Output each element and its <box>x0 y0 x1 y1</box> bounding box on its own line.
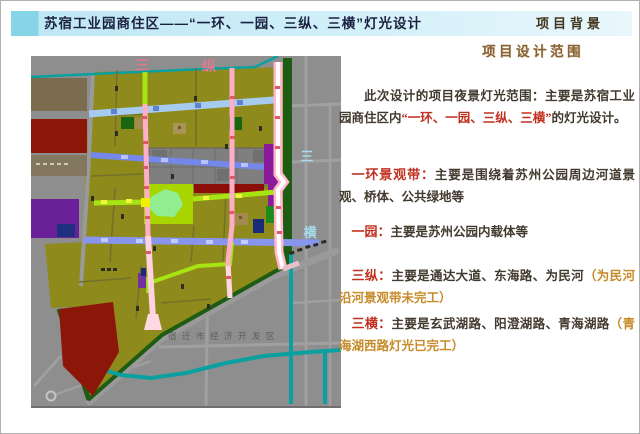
scope-item-horizontal-label: 三横： <box>352 316 392 331</box>
scope-item-vertical-body: 主要是通达大道、东海路、为民河 <box>392 269 584 283</box>
scope-item-ring: 一环景观带：主要是围绕着苏州公园周边河道景观、桥体、公共绿地等 <box>339 164 635 208</box>
parcel-red-west <box>31 119 87 153</box>
parcel-tan-3-dot <box>239 216 242 219</box>
presentation-slide: 苏宿工业园商住区——“一环、一园、三纵、三横”灯光设计 项目背景 项目设计范围 <box>0 0 640 434</box>
slide-title: 苏宿工业园商住区——“一环、一园、三纵、三横”灯光设计 <box>44 11 422 36</box>
landuse-map-svg: 三 纵 三 横 宿迁市经济开发区 <box>31 56 341 406</box>
scope-item-park-body: 主要是苏州公园内载体等 <box>391 225 529 239</box>
scope-item-vertical: 三纵：主要是通达大道、东海路、为民河（为民河沿河景观带未完工） <box>339 265 635 309</box>
scope-item-horizontal: 三横：主要是玄武湖路、阳澄湖路、青海湖路（青海湖西路灯光已完工） <box>339 313 635 357</box>
map-label-three-horizontal-2: 横 <box>303 225 317 240</box>
scope-item-park: 一园：主要是苏州公园内载体等 <box>339 221 635 243</box>
district-label: 宿迁市经济开发区 <box>168 331 280 341</box>
parcel-navy-east <box>253 219 264 233</box>
scope-item-horizontal-body: 主要是玄武湖路、阳澄湖路、青海湖路 <box>392 317 610 331</box>
parcel-navy-west <box>57 224 75 237</box>
parcel-tan-2-dot <box>178 126 181 129</box>
scope-item-park-label: 一园： <box>352 224 391 239</box>
scope-item-vertical-label: 三纵： <box>352 268 392 283</box>
map-label-three-horizontal-1: 三 <box>300 149 313 164</box>
road-horizontal-3 <box>84 240 319 243</box>
scope-item-ring-label: 一环景观带： <box>352 167 435 182</box>
map-label-three-vertical-2: 纵 <box>202 58 216 75</box>
parcel-navy-center <box>141 268 146 276</box>
parcel-brown-north <box>31 78 87 111</box>
corner-label: 项目背景 <box>536 11 604 36</box>
landuse-map: 三 纵 三 横 宿迁市经济开发区 <box>31 56 341 408</box>
intro-part-3: 的灯光设计。 <box>552 111 627 125</box>
green-belt-east <box>283 58 292 266</box>
roundabout <box>47 392 56 401</box>
map-label-three-vertical-1: 三 <box>135 59 149 74</box>
intro-paragraph: 此次设计的项目夜景灯光范围：主要是苏宿工业园商住区内“一环、一园、三纵、三横”的… <box>339 85 635 129</box>
intro-part-quoted: “一环、一园、三纵、三横” <box>402 111 552 125</box>
parcel-brown-south <box>31 155 87 176</box>
section-heading: 项目设计范围 <box>482 40 584 60</box>
parcel-green-small-1 <box>121 117 134 129</box>
title-bar: 苏宿工业园商住区——“一环、一园、三纵、三横”灯光设计 项目背景 <box>11 11 632 36</box>
